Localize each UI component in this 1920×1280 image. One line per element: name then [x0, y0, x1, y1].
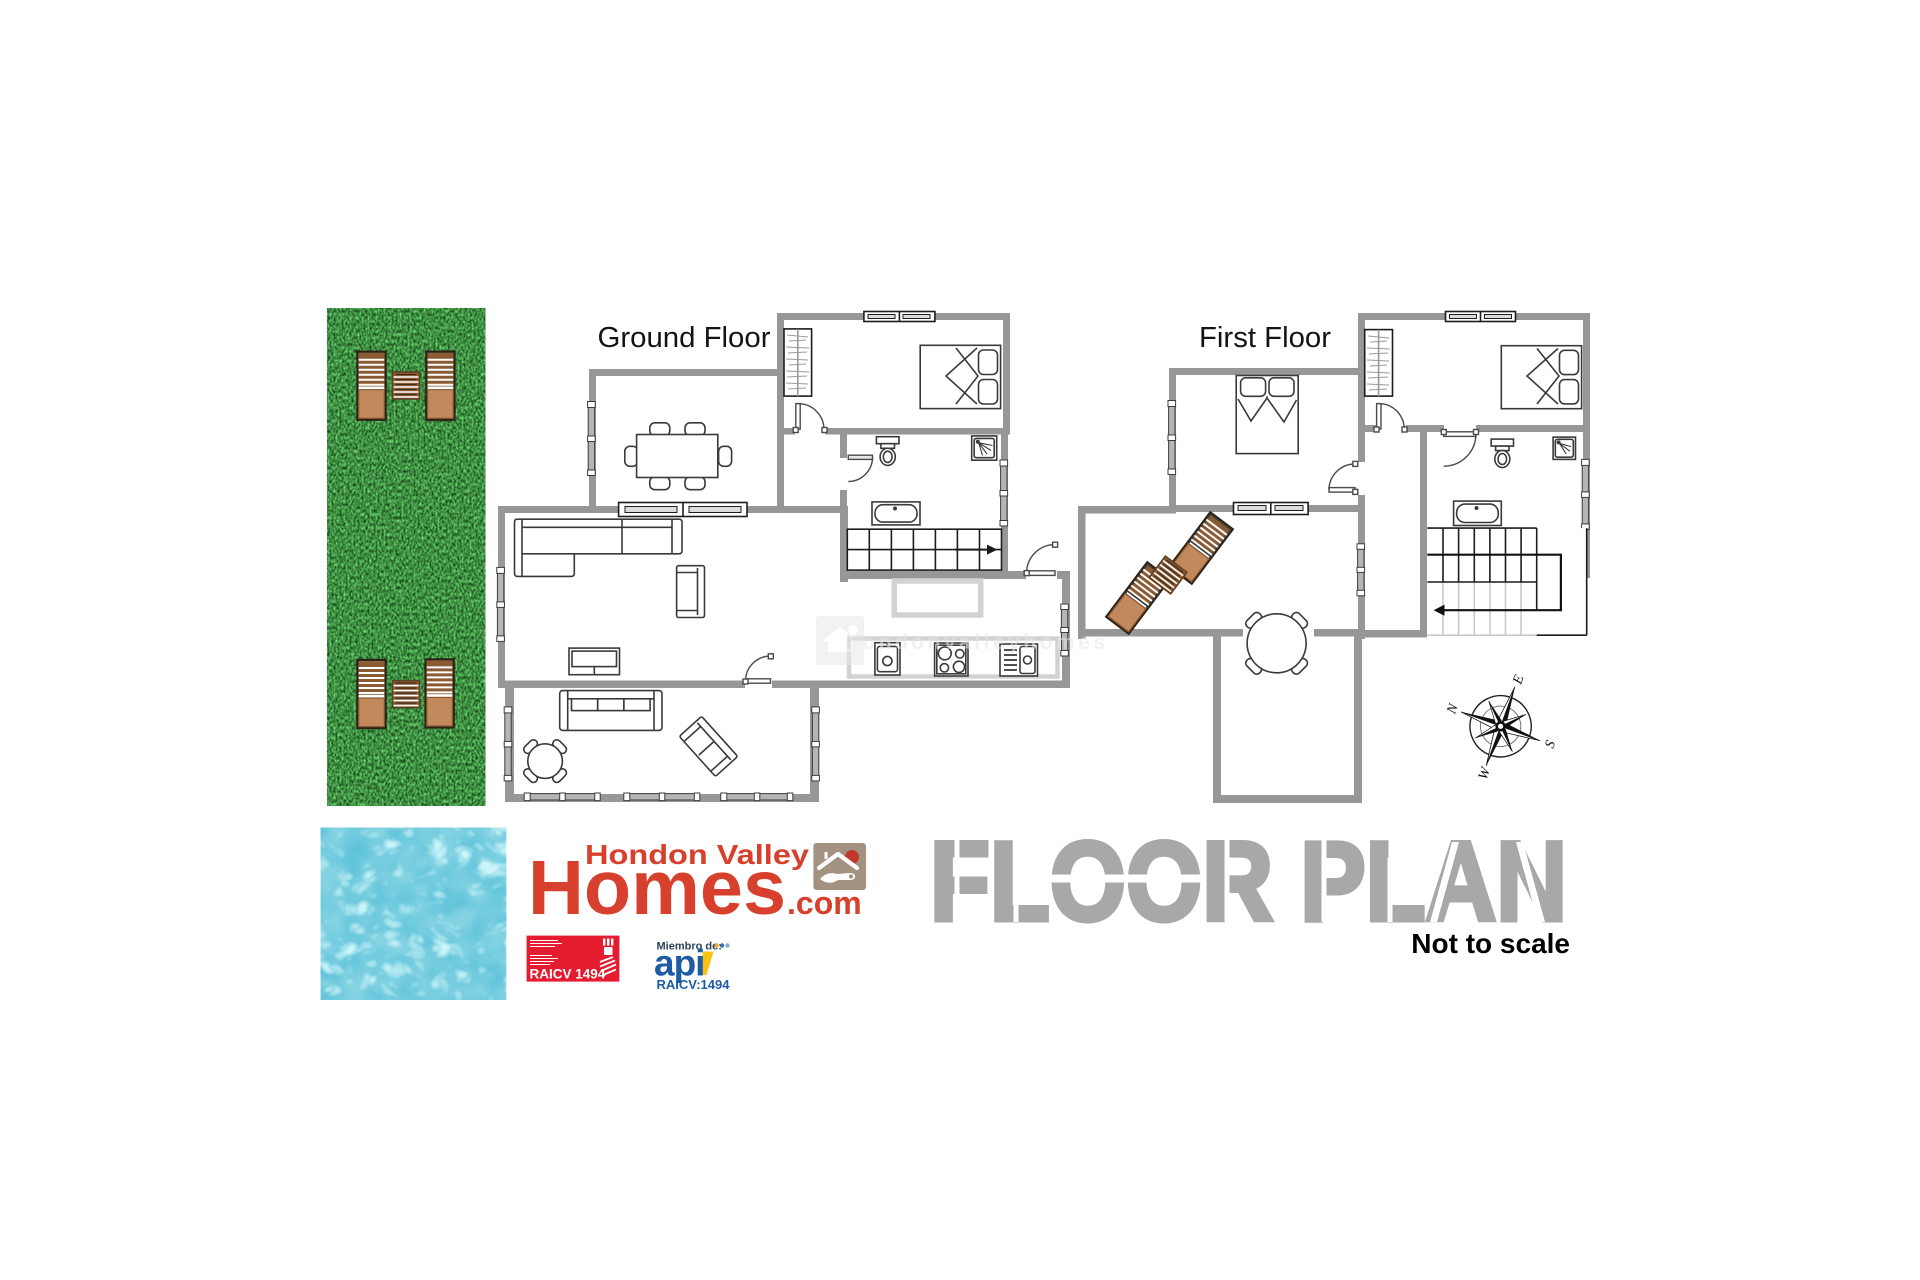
svg-text:E: E — [1510, 673, 1528, 688]
svg-text:RAICV:1494: RAICV:1494 — [657, 977, 731, 992]
svg-text:hondonvalleyhomes: hondonvalleyhomes — [846, 631, 1109, 654]
svg-text:First Floor: First Floor — [1199, 322, 1331, 354]
svg-text:FLOOR PLAN: FLOOR PLAN — [930, 819, 1567, 944]
svg-text:S: S — [1543, 739, 1559, 751]
svg-text:RAICV 1494: RAICV 1494 — [530, 967, 606, 982]
svg-text:.com: .com — [787, 885, 862, 921]
svg-text:N: N — [1444, 701, 1462, 716]
svg-text:Homes: Homes — [528, 845, 786, 931]
svg-text:Ground Floor: Ground Floor — [598, 322, 771, 354]
svg-text:Not to scale: Not to scale — [1411, 928, 1570, 959]
svg-text:W: W — [1476, 765, 1495, 782]
